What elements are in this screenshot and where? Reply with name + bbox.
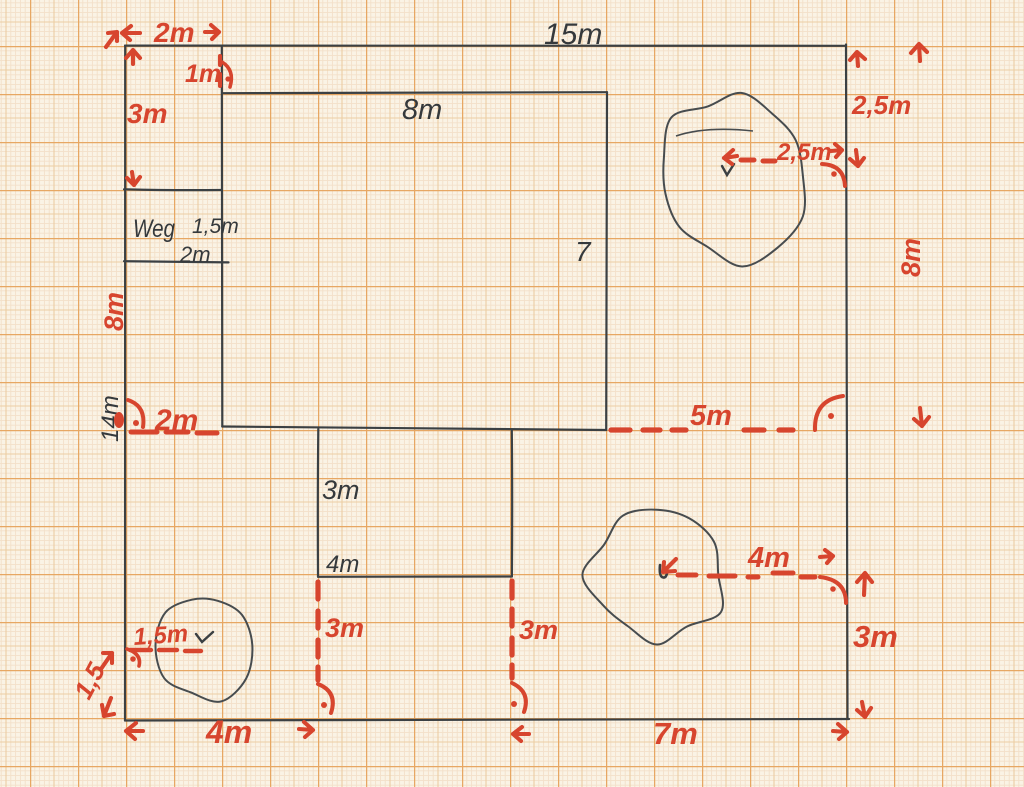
svg-text:4m: 4m bbox=[205, 714, 252, 750]
svg-text:2m: 2m bbox=[179, 242, 211, 267]
svg-text:1m: 1m bbox=[185, 60, 221, 88]
svg-text:2,5m: 2,5m bbox=[851, 90, 911, 120]
svg-text:7m: 7m bbox=[653, 716, 698, 751]
svg-text:3m: 3m bbox=[325, 613, 364, 643]
svg-text:2m: 2m bbox=[153, 17, 194, 48]
svg-text:7: 7 bbox=[575, 236, 592, 267]
svg-text:Weg: Weg bbox=[133, 215, 175, 243]
svg-text:1,5m: 1,5m bbox=[133, 620, 189, 651]
svg-text:2,5m: 2,5m bbox=[776, 139, 832, 166]
svg-text:3m: 3m bbox=[127, 98, 167, 129]
svg-text:8m: 8m bbox=[402, 94, 442, 126]
svg-text:15m: 15m bbox=[544, 18, 602, 51]
svg-text:2m: 2m bbox=[154, 404, 198, 437]
svg-text:1,5m: 1,5m bbox=[192, 215, 239, 238]
svg-text:8m: 8m bbox=[896, 238, 926, 277]
svg-text:5m: 5m bbox=[690, 400, 732, 432]
svg-text:8m: 8m bbox=[99, 292, 129, 331]
svg-text:4m: 4m bbox=[326, 551, 359, 578]
svg-text:3m: 3m bbox=[322, 475, 360, 505]
svg-text:3m: 3m bbox=[853, 619, 898, 654]
svg-text:3m: 3m bbox=[519, 615, 558, 645]
svg-text:4m: 4m bbox=[747, 542, 790, 574]
